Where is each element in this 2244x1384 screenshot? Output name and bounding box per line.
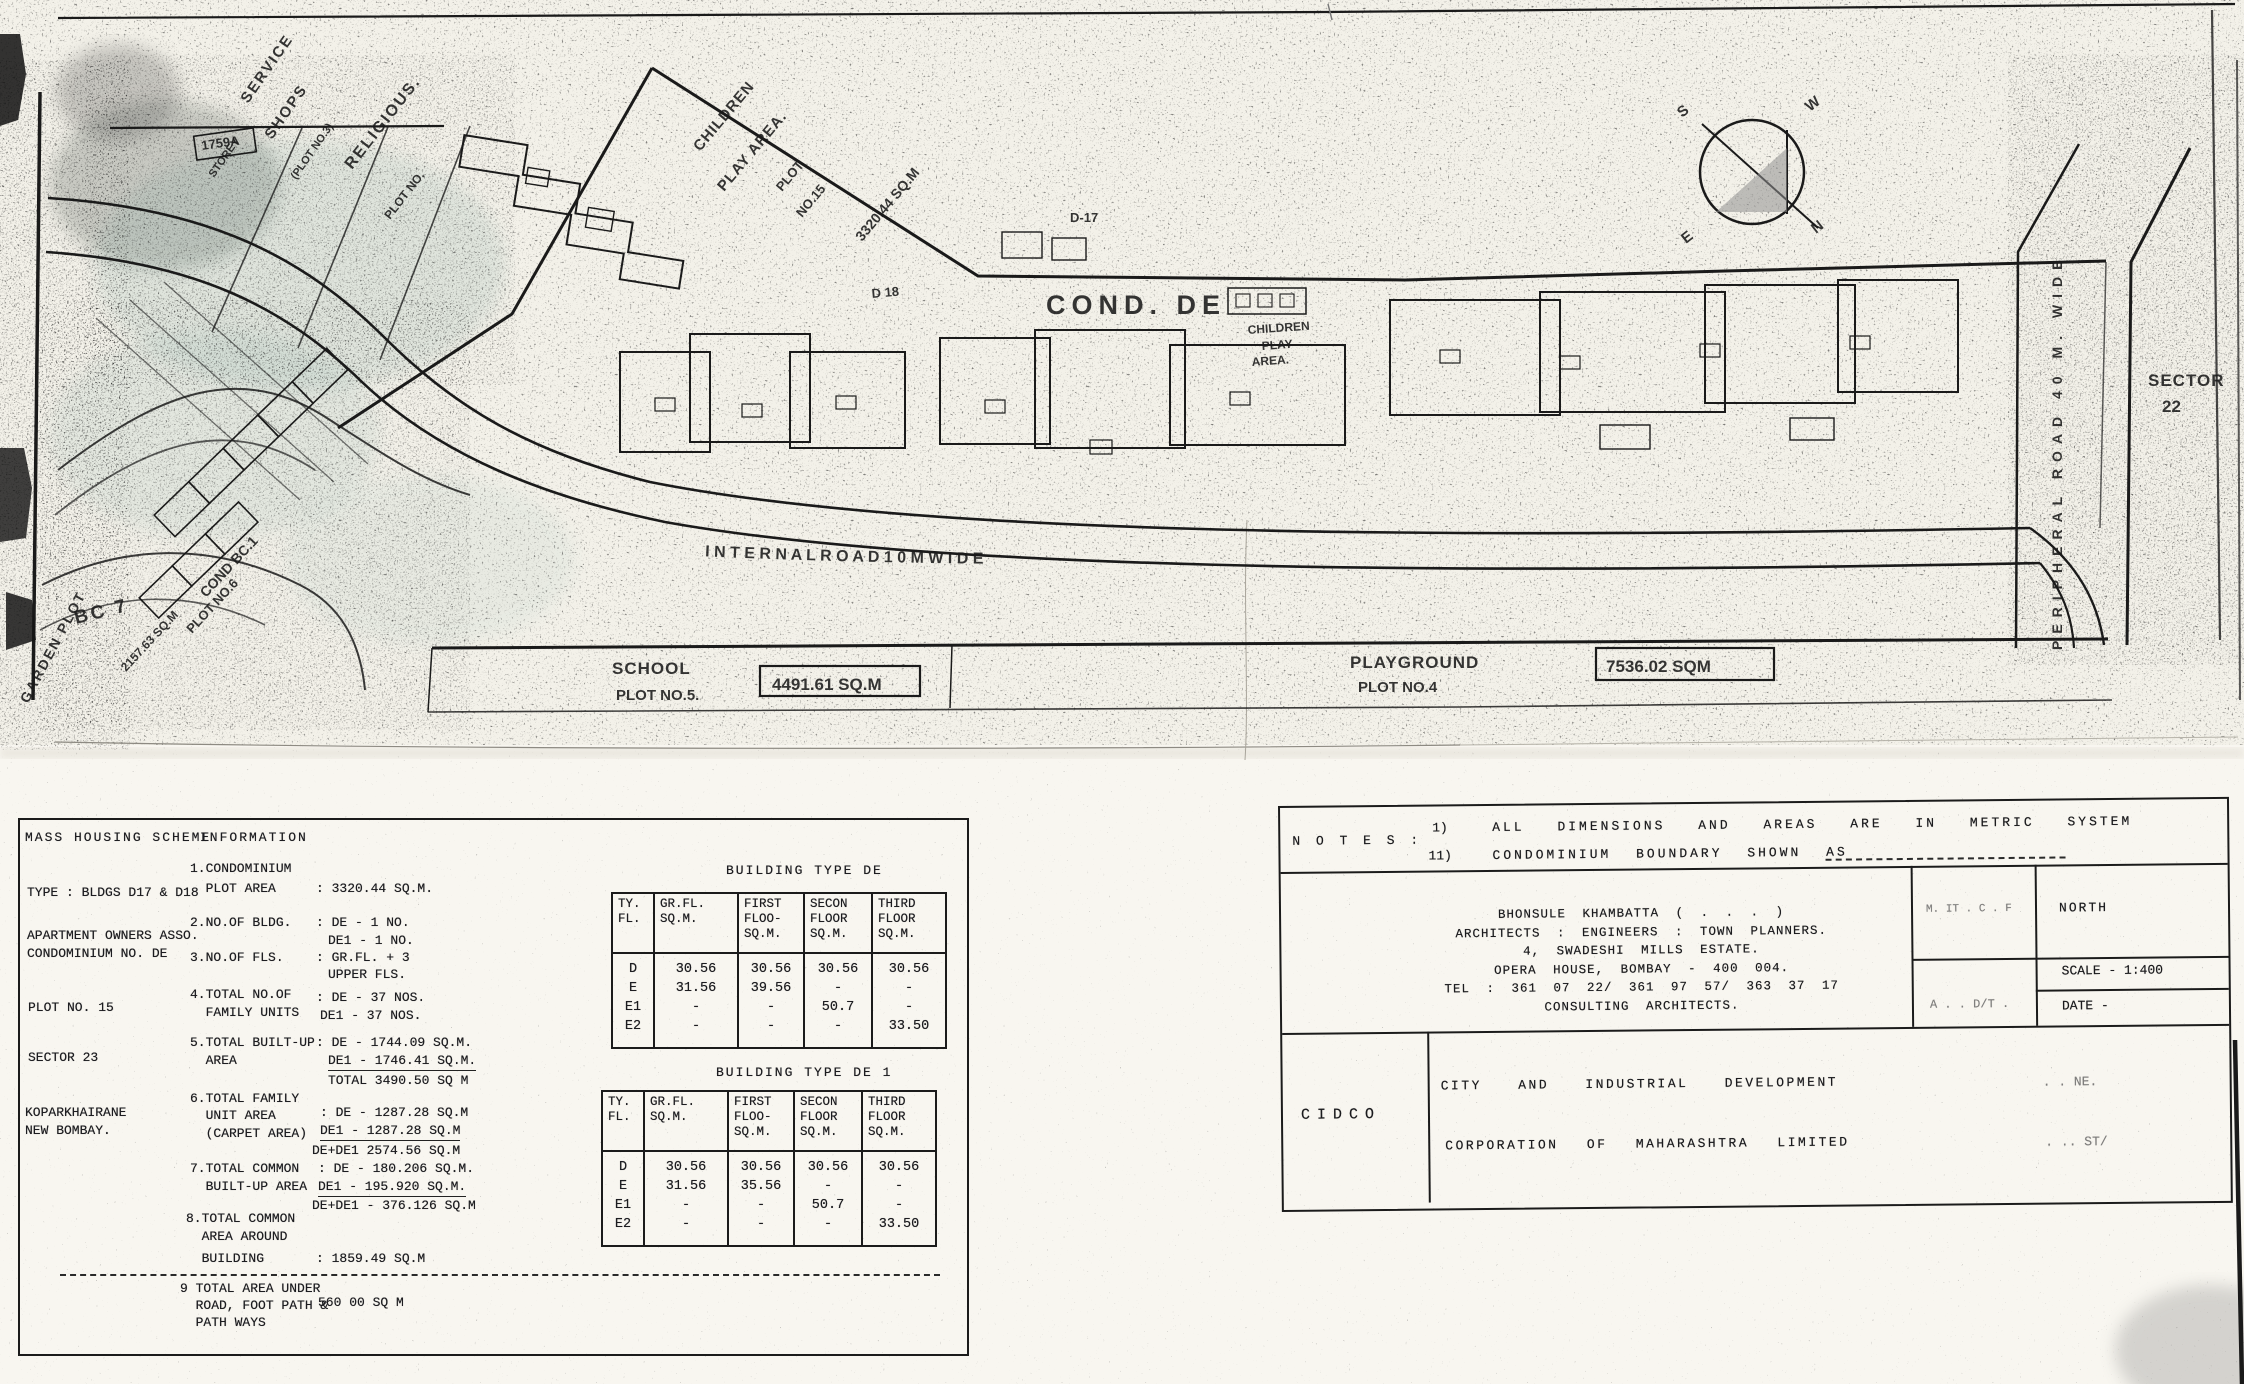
info-item: 1.CONDOMINIUM — [190, 861, 291, 877]
note-2-num: 11) — [1428, 848, 1452, 864]
info-item: 4.TOTAL NO.OF — [190, 987, 291, 1003]
bt1-header: SECON FLOOR SQ.M. — [804, 893, 872, 953]
bt2-header: THIRD FLOOR SQ.M. — [862, 1091, 936, 1151]
label-sector: SECTOR — [2148, 371, 2225, 390]
info-sector: SECTOR 23 — [28, 1050, 98, 1066]
bt2-col: D E E1 E2 — [602, 1151, 644, 1246]
info-value: DE1 - 1 NO. — [328, 933, 414, 949]
info-type: TYPE : BLDGS D17 & D18 — [27, 885, 199, 901]
bt2-header: TY. FL. — [602, 1091, 644, 1151]
cell-scale: SCALE - 1:400 — [2062, 963, 2164, 980]
bt2-header: GR.FL. SQ.M. — [644, 1091, 728, 1151]
cidco-label: CIDCO — [1301, 1107, 1381, 1124]
info-value: DE+DE1 - 376.126 SQ.M — [312, 1198, 476, 1214]
bt2-col: 30.56 - 50.7 - — [794, 1151, 862, 1246]
label-playground: PLAYGROUND — [1350, 653, 1479, 672]
building-type-table-de1: TY. FL. GR.FL. SQ.M. FIRST FLOO- SQ.M. S… — [601, 1090, 937, 1247]
note-2: CONDOMINIUM BOUNDARY SHOWN AS — [1492, 845, 1847, 864]
building-type-table-de: TY. FL. GR.FL. SQ.M. FIRST FLOO- SQ.M. S… — [611, 892, 947, 1049]
info-value: UPPER FLS. — [328, 967, 406, 983]
title-block-divider — [2035, 865, 2039, 1026]
label-cond-de: COND. DE — [1046, 290, 1226, 320]
info-item: 8.TOTAL COMMON — [186, 1211, 295, 1227]
title-block-divider — [1281, 863, 2228, 874]
info-plot-no: PLOT NO. 15 — [28, 1000, 114, 1016]
info-location-2: NEW BOMBAY. — [25, 1123, 111, 1139]
note-1: ALL DIMENSIONS AND AREAS ARE IN METRIC S… — [1492, 814, 2132, 836]
bt1-header: TY. FL. — [612, 893, 654, 953]
info-location-1: KOPARKHAIRANE — [25, 1105, 126, 1121]
label-playground-plot: PLOT NO.4 — [1358, 679, 1438, 696]
info-value: : GR.FL. + 3 — [316, 950, 410, 966]
cell-approved: A . . D/T . — [1930, 996, 2009, 1013]
info-value: DE1 - 37 NOS. — [320, 1008, 421, 1024]
title-block-divider — [1427, 1032, 1431, 1203]
info-item: FAMILY UNITS — [190, 1005, 299, 1021]
bt1-col: 30.56 - - 33.50 — [872, 953, 946, 1048]
info-item: PLOT AREA — [190, 881, 276, 897]
notes-label: N O T E S : — [1292, 833, 1422, 850]
info-value: DE1 - 195.920 SQ.M. — [318, 1179, 466, 1197]
info-divider — [60, 1274, 940, 1276]
label-d18: D 18 — [871, 284, 900, 301]
info-value: : DE - 1287.28 SQ.M — [320, 1105, 468, 1121]
bt1-header: GR.FL. SQ.M. — [654, 893, 738, 953]
info-item: AREA — [190, 1053, 237, 1069]
info-value: DE1 - 1287.28 SQ.M — [320, 1123, 460, 1141]
title-block-divider — [2036, 988, 2229, 992]
info-item: 2.NO.OF BLDG. — [190, 915, 291, 931]
info-item: (CARPET AREA) — [190, 1126, 307, 1142]
illegible-fragment: . . NE. — [2043, 1074, 2098, 1091]
boundary-dash-sample — [1826, 856, 2066, 860]
info-item: BUILDING — [186, 1251, 264, 1267]
bt2-col: 30.56 35.56 - - — [728, 1151, 794, 1246]
label-d17: D-17 — [1070, 210, 1098, 225]
info-value: : DE - 180.206 SQ.M. — [318, 1161, 474, 1177]
info-item: UNIT AREA — [190, 1108, 276, 1124]
bt2-header: FIRST FLOO- SQ.M. — [728, 1091, 794, 1151]
title-block-divider — [1911, 956, 2228, 961]
info-item: PATH WAYS — [180, 1315, 266, 1331]
info-value: DE+DE1 2574.56 SQ.M — [312, 1143, 460, 1159]
label-children-small-2: PLAY — [1261, 337, 1293, 353]
note-1-num: 1) — [1432, 820, 1448, 836]
label-school-area: 4491.61 SQ.M — [772, 675, 882, 694]
label-playground-area: 7536.02 SQM — [1606, 657, 1711, 676]
architect-block: BHONSULE KHAMBATTA ( . . . ) ARCHITECTS … — [1366, 902, 1917, 1018]
label-school: SCHOOL — [612, 659, 691, 678]
bt1-col: 30.56 - 50.7 - — [804, 953, 872, 1048]
bt2-header: SECON FLOOR SQ.M. — [794, 1091, 862, 1151]
info-title-right: INFORMATION — [200, 830, 308, 846]
corporation-line-1: CITY AND INDUSTRIAL DEVELOPMENT — [1441, 1075, 1838, 1095]
title-block-divider — [1282, 1024, 2229, 1035]
scanned-site-plan-sheet: S W E N SERVICE SHOPS (PLOT NO.3) STOREY… — [0, 0, 2244, 1384]
info-item: ROAD, FOOT PATH & — [180, 1298, 328, 1314]
label-school-plot: PLOT NO.5. — [616, 687, 699, 704]
info-item: 6.TOTAL FAMILY — [190, 1091, 299, 1107]
bt1-col: 30.56 31.56 - - — [654, 953, 738, 1048]
label-sector-22: 22 — [2162, 397, 2181, 416]
info-value: TOTAL 3490.50 SQ M — [328, 1073, 468, 1089]
info-value: : DE - 1744.09 SQ.M. — [316, 1035, 472, 1051]
info-item: AREA AROUND — [186, 1229, 287, 1245]
bt2-col: 30.56 31.56 - - — [644, 1151, 728, 1246]
bt2-col: 30.56 - - 33.50 — [862, 1151, 936, 1246]
bt1-col: 30.56 39.56 - - — [738, 953, 804, 1048]
info-item: BUILT-UP AREA — [190, 1179, 307, 1195]
info-item: 9 TOTAL AREA UNDER — [180, 1281, 320, 1297]
bt1-title: BUILDING TYPE DE — [726, 863, 883, 879]
info-item: 3.NO.OF FLS. — [190, 950, 284, 966]
info-title-left: MASS HOUSING SCHEME — [25, 830, 211, 846]
cell-initials: M. IT . C . F — [1926, 901, 2012, 918]
bt2-title: BUILDING TYPE DE 1 — [716, 1065, 892, 1081]
info-value: 560 00 SQ M — [318, 1295, 404, 1311]
corporation-line-2: CORPORATION OF MAHARASHTRA LIMITED — [1445, 1135, 1849, 1155]
illegible-fragment: . .. ST/ — [2045, 1134, 2108, 1151]
info-value: : DE - 1 NO. — [316, 915, 410, 931]
info-item: 5.TOTAL BUILT-UP — [190, 1035, 315, 1051]
info-value: : DE - 37 NOS. — [316, 990, 425, 1006]
bt1-header: FIRST FLOO- SQ.M. — [738, 893, 804, 953]
label-peripheral-road: PERIPHERAL ROAD 40 M. WIDE — [2049, 254, 2065, 650]
info-value: DE1 - 1746.41 SQ.M. — [328, 1053, 476, 1071]
cell-date: DATE - — [2062, 998, 2109, 1014]
info-condominium-no: CONDOMINIUM NO. DE — [27, 946, 167, 962]
cell-north: NORTH — [2059, 900, 2108, 916]
bt1-col: D E E1 E2 — [612, 953, 654, 1048]
info-value: : 3320.44 SQ.M. — [316, 881, 433, 897]
info-item: 7.TOTAL COMMON — [190, 1161, 299, 1177]
bt1-header: THIRD FLOOR SQ.M. — [872, 893, 946, 953]
info-value: : 1859.49 SQ.M — [316, 1251, 425, 1267]
title-block: N O T E S : 1) ALL DIMENSIONS AND AREAS … — [1278, 797, 2233, 1212]
info-owners-asso: APARTMENT OWNERS ASSO. — [27, 928, 199, 944]
label-children-small-3: AREA. — [1251, 352, 1289, 369]
